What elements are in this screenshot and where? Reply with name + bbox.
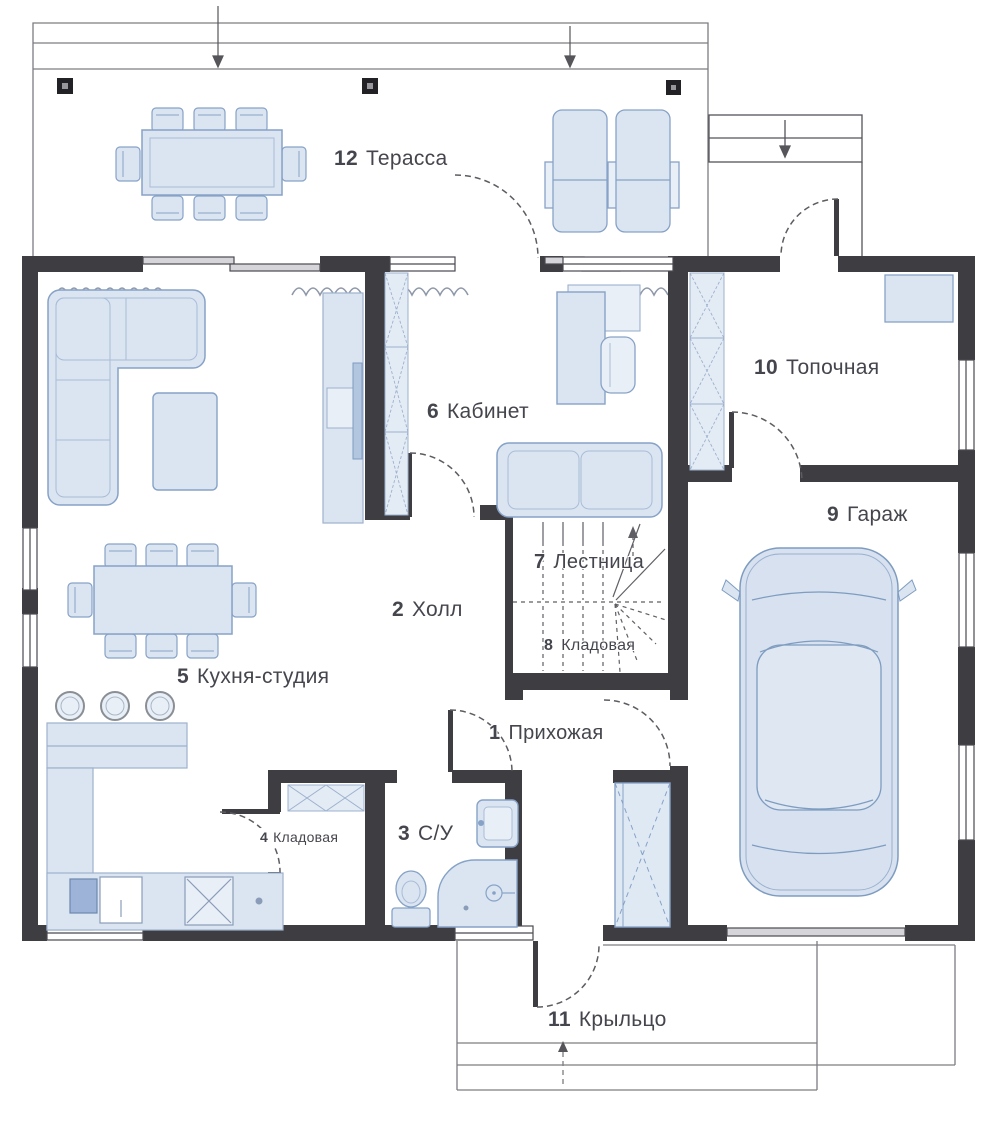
room-label-boiler-room: 10Топочная [754,356,879,380]
floor-plan: 1Прихожая 2Холл 3С/У 4Кладовая 5Кухня-ст… [0,0,999,1128]
corner-shower [438,860,517,927]
storage4-wardrobe [288,785,364,811]
room-label-bathroom: 3С/У [398,822,453,846]
tv-cabinet [323,293,363,523]
room-label-garage: 9Гараж [827,503,908,527]
floor-plan-drawing [0,0,999,1128]
bathroom-fixtures [392,800,518,927]
kitchen-counter [47,723,283,930]
kitchen-dining-table [68,544,256,658]
porch [457,941,955,1090]
room-label-storage8: 8Кладовая [544,637,635,655]
car [722,548,916,896]
entry-arrows-top [213,6,575,67]
room-label-porch: 11Крыльцо [548,1008,667,1032]
room-label-storage4: 4Кладовая [252,828,346,846]
room-label-hall: 2Холл [392,598,463,622]
room-label-terrace: 12Терасса [334,147,447,171]
bar-stools [56,692,174,720]
desk-chair [601,337,635,393]
room-label-study: 6Кабинет [427,400,529,424]
hallway-wardrobe [615,783,670,927]
study-sofa [497,443,662,517]
room-label-hallway: 1Прихожая [489,722,604,745]
terrace-steps [709,115,862,256]
terrace-posts [57,78,681,95]
terrace-loungers [545,110,679,232]
toilet [392,871,430,927]
boiler [885,275,953,322]
room-label-stairs: 7Лестница [534,551,644,574]
boiler-room-wardrobe [690,273,724,470]
coffee-table [153,393,217,490]
terrace-dining-table [116,108,306,220]
study-wardrobe [385,273,408,515]
sink [70,879,97,913]
room-label-kitchen-studio: 5Кухня-студия [177,665,329,689]
study-desk [557,285,640,404]
garage-door [727,928,905,936]
